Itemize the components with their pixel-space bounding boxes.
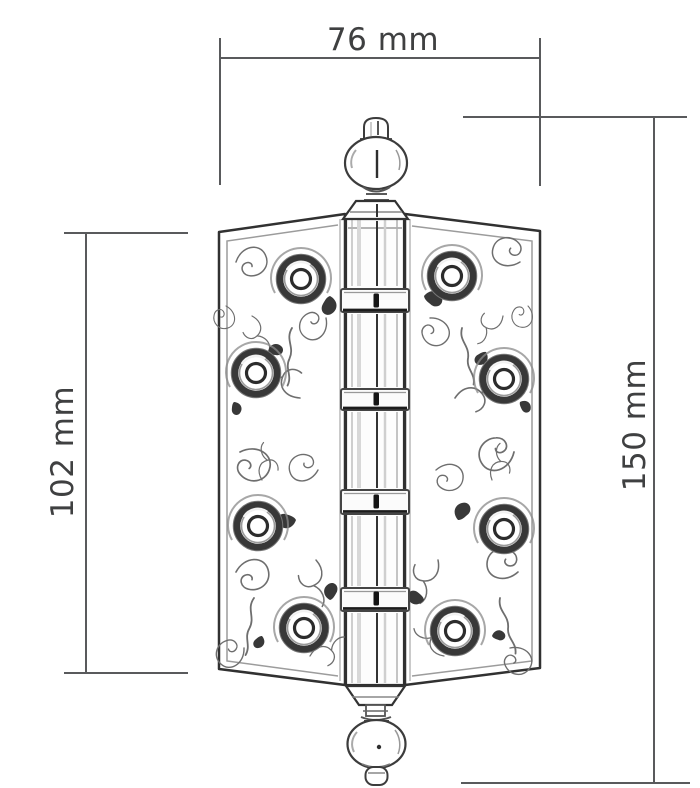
- bearing-ring: [341, 289, 409, 312]
- bearing-ring: [341, 490, 409, 514]
- dimension-overall-height-label: 150 mm: [617, 359, 653, 491]
- bearing-ring: [341, 588, 409, 611]
- finial-base: [343, 201, 408, 219]
- bearing-ring: [341, 389, 409, 410]
- finial-tip: [364, 118, 388, 139]
- finial-ball: [348, 720, 406, 768]
- hinge-dimension-drawing: 76 mm 102 mm 150 mm: [0, 0, 700, 788]
- dimension-leaf-height-label: 102 mm: [45, 386, 81, 518]
- dimension-leaf-height: [64, 233, 188, 673]
- hinge-bottom-finial: [346, 686, 406, 785]
- hinge-illustration: [211, 118, 540, 785]
- dimension-leaf-height-lines: [64, 233, 188, 673]
- hinge-left-leaf: [211, 214, 354, 685]
- hinge-top-finial: [343, 118, 408, 219]
- finial-ball-dot: [377, 745, 381, 749]
- hinge-barrel: [341, 217, 409, 685]
- finial-tip: [366, 767, 388, 785]
- finial-neck-rings: [364, 194, 389, 200]
- barrel-body: [346, 217, 404, 685]
- dimension-diagram: 76 mm 102 mm 150 mm: [0, 0, 700, 788]
- hinge-right-leaf: [405, 214, 540, 685]
- dimension-width-label: 76 mm: [327, 22, 439, 58]
- finial-cap: [346, 686, 405, 705]
